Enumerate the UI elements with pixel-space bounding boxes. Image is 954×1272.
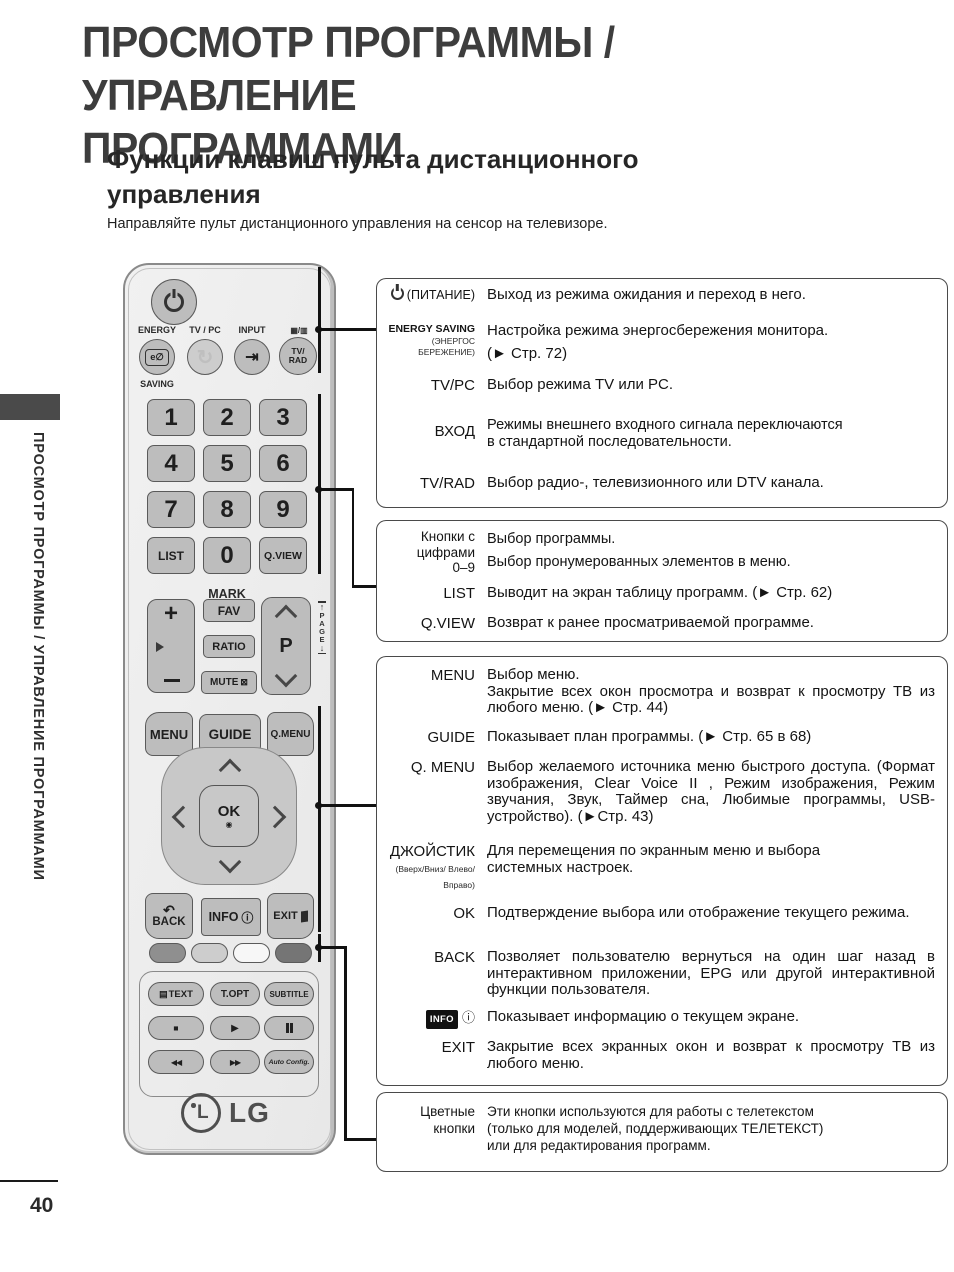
rewind-button[interactable]: ◀◀: [148, 1050, 204, 1074]
volume-down-icon: [164, 679, 180, 683]
play-icon: ▶: [231, 1023, 239, 1034]
row-label: BACK: [383, 949, 475, 966]
row-desc: Позволяет пользователю вернуться на один…: [487, 949, 935, 999]
digit-button-5[interactable]: 5: [203, 445, 251, 482]
color-button-yellow[interactable]: [233, 943, 270, 963]
teletext-icon: ▤: [159, 989, 168, 1000]
info-circle-icon: ⓘ: [241, 909, 253, 926]
nav-right-icon: [264, 806, 287, 829]
info-button[interactable]: INFOⓘ: [201, 898, 261, 936]
teletext-group: ▤TEXT T.OPT SUBTITLE ■ ▶ ◀◀ ▶▶ Auto Conf…: [139, 971, 319, 1097]
row-desc: Выход из режима ожидания и переход в нег…: [487, 287, 935, 304]
row-desc: Режимы внешнего входного сигнала переклю…: [487, 417, 922, 450]
row-desc: Выбор программы. Выбор пронумерованных э…: [487, 529, 935, 570]
color-button-green[interactable]: [191, 943, 228, 963]
page-number: 40: [30, 1194, 53, 1218]
callout-row: INFO ⓘ Показывает информацию о текущем э…: [383, 1009, 935, 1029]
callout-row: ENERGY SAVING (ЭНЕРГОС БЕРЕЖЕНИЕ) Настро…: [383, 323, 935, 362]
digit-button-0[interactable]: 0: [203, 537, 251, 574]
pause-icon: [286, 1023, 293, 1033]
play-button[interactable]: ▶: [210, 1016, 260, 1040]
input-button[interactable]: ⇥: [234, 339, 270, 375]
row-label: LIST: [383, 585, 475, 602]
row-desc: Показывает информацию о текущем экране.: [487, 1009, 935, 1026]
tvrad-button[interactable]: TV/ RAD: [279, 337, 317, 375]
row-desc: Для перемещения по экранным меню и выбор…: [487, 843, 935, 876]
callout-box-menu: MENU Выбор меню. Закрытие всех окон прос…: [376, 656, 948, 1086]
digit-button-8[interactable]: 8: [203, 491, 251, 528]
row-desc: Настройка режима энергосбережения монито…: [487, 323, 935, 362]
back-arrow-icon: ↶: [163, 904, 175, 916]
mute-button[interactable]: MUTE⊠: [201, 671, 257, 694]
row-label: Q. MENU: [383, 759, 475, 776]
menu-button[interactable]: MENU: [145, 712, 193, 756]
row-label: INFO ⓘ: [383, 1009, 475, 1029]
page-title-line1: ПРОСМОТР ПРОГРАММЫ / УПРАВЛЕНИЕ: [82, 16, 882, 122]
leader-line-box4: [318, 946, 346, 949]
callout-row: OK Подтверждение выбора или отображение …: [383, 905, 935, 922]
exit-button[interactable]: EXIT: [267, 893, 314, 939]
callout-row: GUIDE Показывает план программы. (► Стр.…: [383, 729, 935, 746]
stop-icon: ■: [173, 1023, 178, 1033]
row-desc: Закрытие всех экранных окон и возврат к …: [487, 1039, 935, 1072]
subtitle-button[interactable]: SUBTITLE: [264, 982, 314, 1006]
intro-text: Направляйте пульт дистанционного управле…: [107, 216, 607, 232]
leader-bracket-menu-block: [318, 706, 321, 932]
fast-forward-icon: ▶▶: [230, 1058, 240, 1067]
energy-label-top: ENERGY: [133, 325, 181, 335]
tvpc-cycle-icon: ↻: [197, 345, 214, 370]
energy-saving-button[interactable]: e∅: [139, 339, 175, 375]
row-desc: Эти кнопки используются для работы с тел…: [487, 1103, 935, 1154]
digit-button-3[interactable]: 3: [259, 399, 307, 436]
row-desc: Подтверждение выбора или отображение тек…: [487, 905, 935, 922]
row-label: TV/PC: [383, 377, 475, 394]
row-label: MENU: [383, 667, 475, 684]
row-label: EXIT: [383, 1039, 475, 1056]
lg-logo-text: LG: [229, 1097, 270, 1129]
callout-row: (ПИТАНИЕ) Выход из режима ожидания и пер…: [383, 287, 935, 304]
row-desc: Показывает план программы. (► Стр. 65 в …: [487, 729, 935, 746]
callout-row: EXIT Закрытие всех экранных окон и возвр…: [383, 1039, 935, 1072]
leader-line-box4: [344, 1138, 378, 1141]
page-vertical-label: PAGE: [318, 612, 327, 644]
row-label: ENERGY SAVING (ЭНЕРГОС БЕРЕЖЕНИЕ): [383, 323, 475, 358]
back-button[interactable]: ↶ BACK: [145, 893, 193, 939]
lg-logo-mark: L: [181, 1093, 221, 1133]
page-footer-rule: [0, 1180, 58, 1182]
color-button-red[interactable]: [149, 943, 186, 963]
callout-row: ВХОД Режимы внешнего входного сигнала пе…: [383, 417, 935, 450]
leader-bracket-top-buttons: [318, 267, 321, 373]
nav-left-icon: [172, 806, 195, 829]
callout-row: TV/PC Выбор режима TV или PC.: [383, 377, 935, 394]
autoconfig-button[interactable]: Auto Config.: [264, 1050, 314, 1074]
power-icon: [164, 292, 184, 312]
channel-up-icon: [275, 605, 298, 628]
qmenu-button[interactable]: Q.MENU: [267, 712, 314, 756]
ratio-button[interactable]: RATIO: [203, 635, 255, 658]
callout-box-color-buttons: Цветные кнопки Эти кнопки используются д…: [376, 1092, 948, 1172]
mute-icon: ⊠: [240, 677, 248, 688]
sidebar-tab: [0, 394, 60, 420]
leader-line-box1: [318, 328, 378, 331]
digit-button-1[interactable]: 1: [147, 399, 195, 436]
nav-up-icon: [219, 759, 242, 782]
stop-button[interactable]: ■: [148, 1016, 204, 1040]
power-icon: [391, 287, 404, 300]
row-label: ВХОД: [383, 417, 475, 440]
digit-button-7[interactable]: 7: [147, 491, 195, 528]
callout-row: ДЖОЙСТИК (Вверх/Вниз/ Влево/ Вправо) Для…: [383, 843, 935, 891]
volume-up-icon: +: [148, 600, 194, 628]
row-label: OK: [383, 905, 475, 922]
list-button[interactable]: LIST: [147, 537, 195, 574]
row-label: (ПИТАНИЕ): [383, 287, 475, 304]
input-label: INPUT: [228, 325, 276, 335]
callout-box-digits: Кнопки с цифрами 0–9 Выбор программы. Вы…: [376, 520, 948, 642]
leader-line-box4: [344, 946, 347, 1140]
row-label: Q.VIEW: [383, 615, 475, 632]
callout-box-power: (ПИТАНИЕ) Выход из режима ожидания и пер…: [376, 278, 948, 508]
row-desc: Выбор меню. Закрытие всех окон просмотра…: [487, 667, 935, 717]
leader-bracket-digits: [318, 394, 321, 574]
pause-button[interactable]: [264, 1016, 314, 1040]
page-down-arrow: ↓: [320, 644, 325, 653]
p-rocker[interactable]: P: [261, 597, 311, 695]
leader-line-box2: [352, 488, 355, 587]
power-button[interactable]: [151, 279, 197, 325]
color-button-blue[interactable]: [275, 943, 312, 963]
digit-button-4[interactable]: 4: [147, 445, 195, 482]
callout-row: Кнопки с цифрами 0–9 Выбор программы. Вы…: [383, 529, 935, 576]
energy-label-bottom: SAVING: [133, 379, 181, 389]
forward-button[interactable]: ▶▶: [210, 1050, 260, 1074]
row-label: ДЖОЙСТИК (Вверх/Вниз/ Влево/ Вправо): [383, 843, 475, 891]
row-desc: Выводит на экран таблицу программ. (► Ст…: [487, 585, 935, 602]
qview-button[interactable]: Q.VIEW: [259, 537, 307, 574]
row-label: Кнопки с цифрами 0–9: [383, 529, 475, 576]
text-button[interactable]: ▤TEXT: [148, 982, 204, 1006]
callout-row: Q.VIEW Возврат к ранее просматриваемой п…: [383, 615, 935, 632]
info-badge: INFO: [426, 1010, 458, 1029]
input-arrow-icon: ⇥: [245, 347, 258, 367]
topt-button[interactable]: T.OPT: [210, 982, 260, 1006]
callout-row: BACK Позволяет пользователю вернуться на…: [383, 949, 935, 999]
speaker-icon: [156, 642, 164, 652]
leader-line-box3: [318, 804, 378, 807]
row-desc: Выбор желаемого источника меню быстрого …: [487, 759, 935, 825]
row-label: GUIDE: [383, 729, 475, 746]
section-heading: Функции клавиш пульта дистанционного упр…: [107, 142, 727, 212]
page-indicator: ↑ PAGE ↓: [315, 601, 329, 654]
ok-dot-icon: ◉: [226, 820, 233, 829]
callout-row: TV/RAD Выбор радио-, телевизионного или …: [383, 475, 935, 492]
row-desc: Выбор радио-, телевизионного или DTV кан…: [487, 475, 935, 492]
leader-line-box2: [318, 488, 354, 491]
leader-line-box2: [352, 585, 379, 588]
ok-button[interactable]: OK ◉: [199, 785, 259, 847]
info-circle-icon: ⓘ: [462, 1010, 475, 1025]
rewind-icon: ◀◀: [171, 1058, 181, 1067]
callout-row: MENU Выбор меню. Закрытие всех окон прос…: [383, 667, 935, 717]
energy-saving-icon: e∅: [145, 349, 169, 366]
nav-down-icon: [219, 851, 242, 874]
digit-button-2[interactable]: 2: [203, 399, 251, 436]
callout-row: Q. MENU Выбор желаемого источника меню б…: [383, 759, 935, 825]
row-label: TV/RAD: [383, 475, 475, 492]
exit-door-icon: [301, 910, 308, 922]
callout-row: LIST Выводит на экран таблицу программ. …: [383, 585, 935, 602]
remote-illustration: ENERGY TV / PC INPUT ▦/▥ e∅ ↻ ⇥ TV/ RAD …: [123, 263, 336, 1155]
sidebar-vertical-label: ПРОСМОТР ПРОГРАММЫ / УПРАВЛЕНИЕ ПРОГРАММ…: [30, 432, 46, 992]
nav-pad[interactable]: OK ◉: [161, 747, 297, 885]
digit-button-6[interactable]: 6: [259, 445, 307, 482]
row-desc: Возврат к ранее просматриваемой программ…: [487, 615, 935, 632]
fav-button[interactable]: FAV: [203, 599, 255, 622]
volume-rocker[interactable]: +: [147, 599, 195, 693]
row-desc: Выбор режима TV или PC.: [487, 377, 935, 394]
channel-down-icon: [275, 665, 298, 688]
digit-button-9[interactable]: 9: [259, 491, 307, 528]
row-label: Цветные кнопки: [383, 1103, 475, 1137]
callout-row: Цветные кнопки Эти кнопки используются д…: [383, 1103, 935, 1154]
tvpc-button[interactable]: ↻: [187, 339, 223, 375]
tvpc-label: TV / PC: [181, 325, 229, 335]
